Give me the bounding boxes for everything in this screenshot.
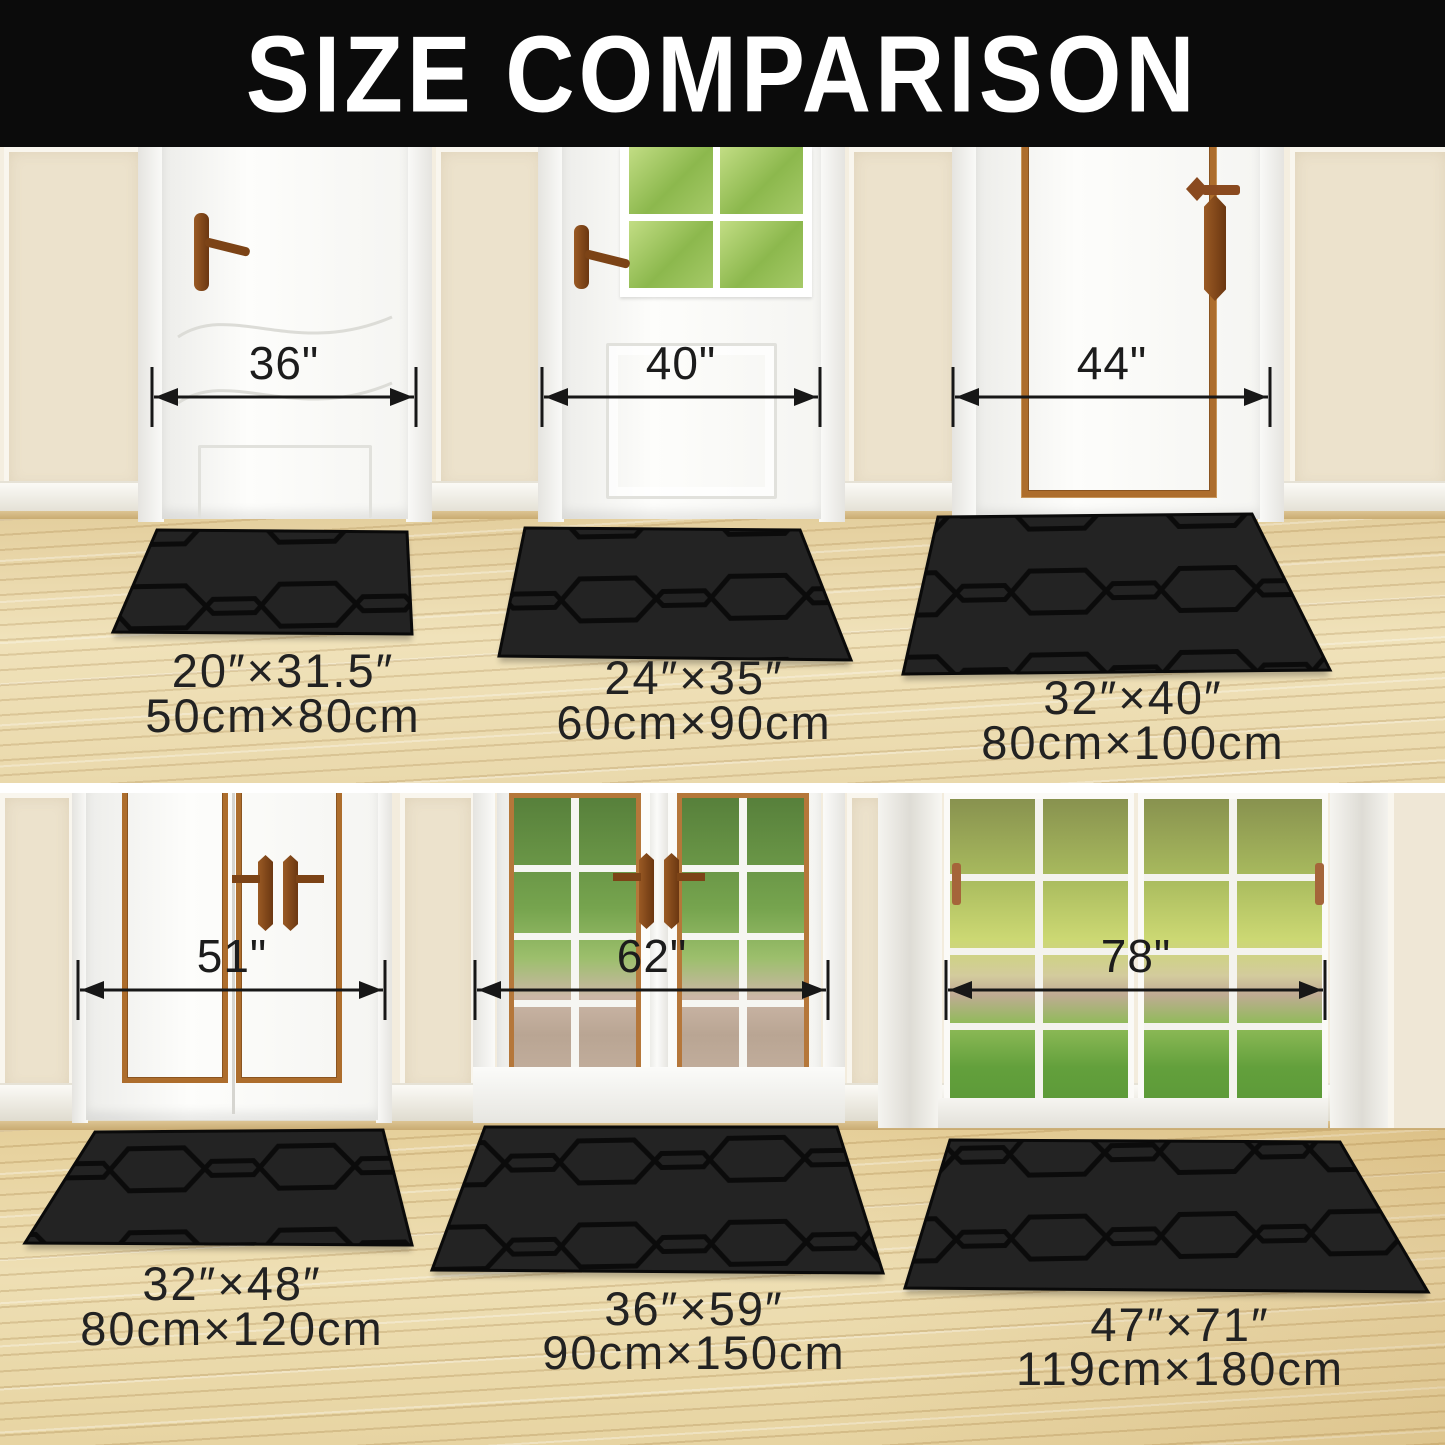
- wall-panel: [0, 793, 74, 1093]
- door-62-inch: [473, 793, 845, 1123]
- door-handle-icon: [1204, 195, 1226, 301]
- handle: [283, 855, 298, 931]
- door-slab: [162, 147, 408, 519]
- handle-lever: [677, 873, 705, 881]
- patio-door-glass: [1138, 793, 1328, 1110]
- door-jamb: [1258, 147, 1284, 522]
- door-handle-icon: [574, 225, 589, 289]
- scene-single-doors: [0, 147, 1445, 783]
- door-lower-panel: [606, 343, 777, 499]
- door-panel-curves: [162, 285, 408, 435]
- scene-double-doors: [0, 793, 1445, 1445]
- door-78-inch: [878, 793, 1445, 1128]
- door-brown-trim: [122, 793, 228, 1083]
- wall-panel: [400, 793, 476, 1093]
- door-brown-trim: [1022, 147, 1216, 497]
- handle-plate: [283, 855, 298, 931]
- door-handle-icon: [1315, 863, 1324, 905]
- handle: [639, 853, 654, 929]
- window-pane: [720, 221, 804, 288]
- wall-panel: [1290, 147, 1445, 491]
- door-window: [620, 147, 812, 297]
- window-pane: [720, 147, 804, 214]
- wood-floor: [0, 519, 1445, 783]
- handle: [664, 853, 679, 929]
- door-bottom-rail: [473, 1067, 845, 1123]
- wall-panel: [436, 147, 546, 491]
- door-frame-post: [878, 793, 942, 1128]
- window-glass: [629, 147, 803, 288]
- door-44-inch: [952, 147, 1284, 522]
- handle: [258, 855, 273, 931]
- patio-door-glass: [944, 793, 1134, 1110]
- door-lower-panel: [198, 445, 372, 518]
- door-frame-post: [1330, 793, 1394, 1128]
- handle-lever: [204, 237, 251, 257]
- scene-divider: [0, 783, 1445, 793]
- door-center-mullion: [650, 793, 668, 1073]
- door-handle-icon: [194, 213, 209, 291]
- handle-plate: [1204, 195, 1226, 301]
- door-jamb: [819, 147, 845, 522]
- wall-panel: [4, 147, 144, 491]
- door-36-inch: [138, 147, 432, 522]
- door-jamb: [952, 147, 978, 522]
- door-slab: [86, 793, 378, 1120]
- door-bottom-rail: [938, 1098, 1328, 1128]
- door-40-inch: [538, 147, 845, 522]
- handle-lever: [613, 873, 641, 881]
- door-handle-pair-icon: [258, 855, 298, 931]
- handle-plate: [664, 853, 679, 929]
- door-brown-trim: [236, 793, 342, 1083]
- handle-lever: [1202, 185, 1240, 195]
- handle-plate: [258, 855, 273, 931]
- door-center-split: [232, 793, 235, 1114]
- door-handle-icon: [952, 863, 961, 905]
- door-51-inch: [72, 793, 392, 1123]
- window-pane: [629, 221, 713, 288]
- door-jamb: [376, 793, 392, 1123]
- handle-lever: [232, 875, 260, 883]
- french-door-glass: [509, 793, 641, 1079]
- handle-lever: [296, 875, 324, 883]
- door-slab: [976, 147, 1260, 519]
- handle-plate: [194, 213, 209, 291]
- door-jamb: [138, 147, 164, 522]
- window-pane: [629, 147, 713, 214]
- wood-floor: [0, 1130, 1445, 1445]
- wall-panel: [849, 147, 959, 491]
- handle-plate: [639, 853, 654, 929]
- door-handle-pair-icon: [639, 853, 679, 929]
- french-door-glass: [677, 793, 809, 1079]
- page-title: SIZE COMPARISON: [246, 11, 1199, 136]
- door-slab: [562, 147, 821, 519]
- size-comparison-infographic: SIZE COMPARISON: [0, 0, 1445, 1445]
- wall-panel: [1388, 793, 1445, 1128]
- door-jamb: [538, 147, 564, 522]
- door-jamb: [406, 147, 432, 522]
- title-banner: SIZE COMPARISON: [0, 0, 1445, 147]
